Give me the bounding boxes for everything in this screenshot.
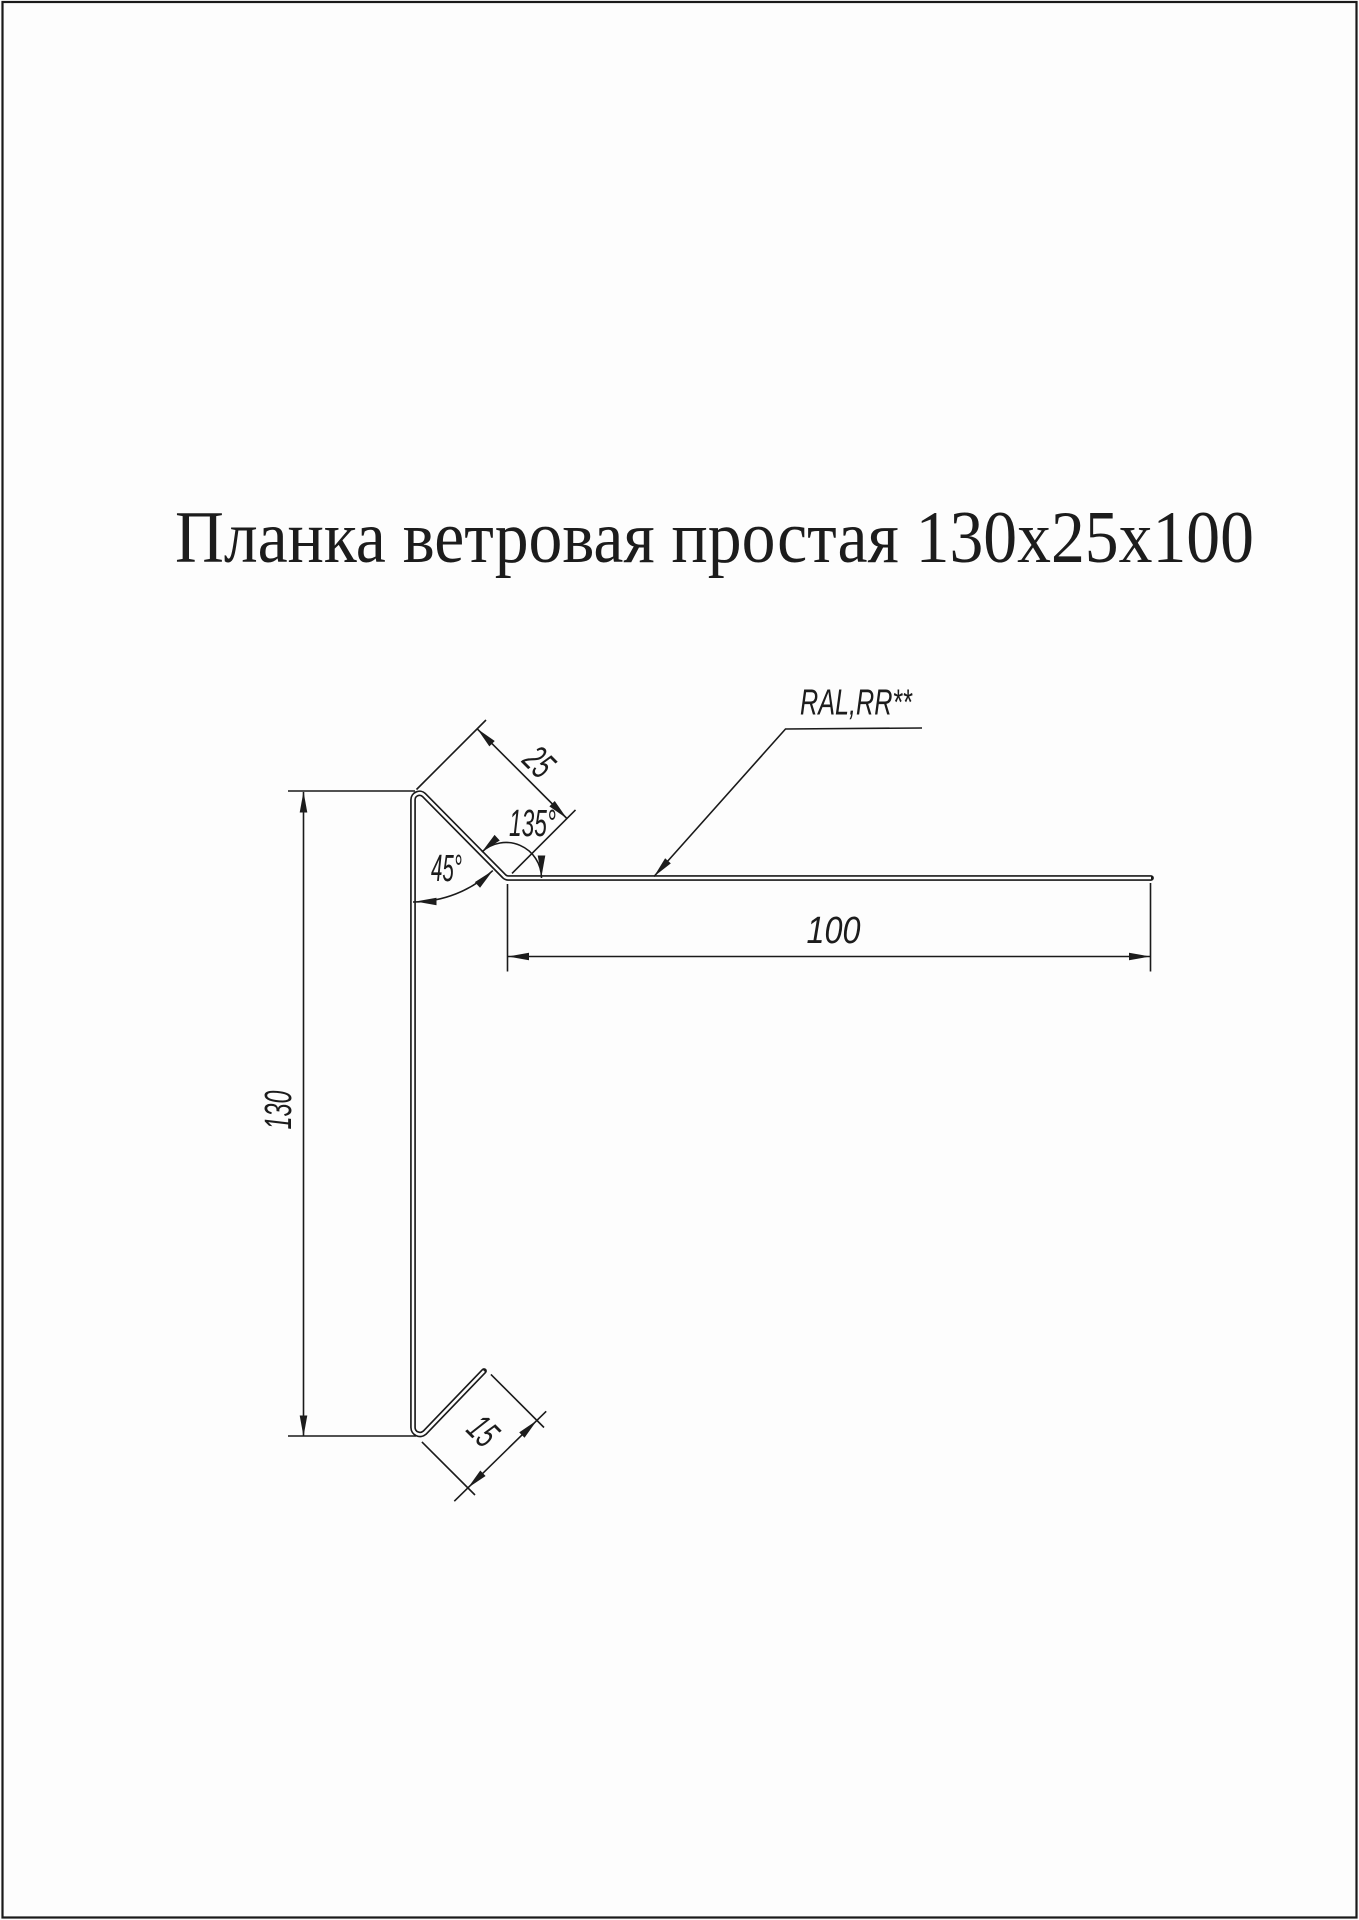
svg-text:Планка ветровая простая 130х25: Планка ветровая простая 130х25х100 [175,497,1254,579]
svg-text:RAL,RR**: RAL,RR** [800,682,913,723]
svg-text:45°: 45° [431,848,462,890]
svg-text:100: 100 [807,910,861,952]
svg-text:15: 15 [458,1407,506,1455]
svg-text:130: 130 [258,1091,300,1130]
svg-text:25: 25 [514,738,563,787]
svg-text:135°: 135° [509,803,556,845]
